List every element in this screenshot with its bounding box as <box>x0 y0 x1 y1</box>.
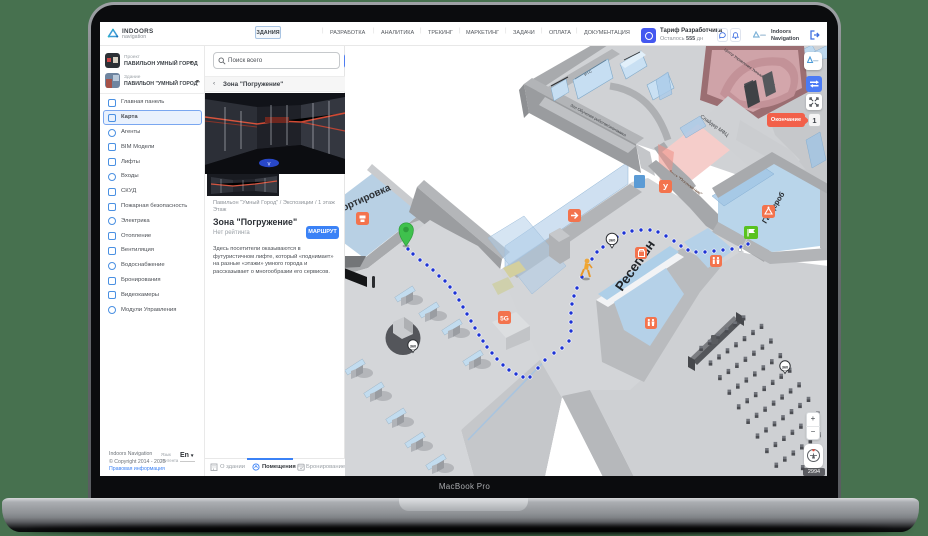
svg-text:360: 360 <box>782 365 788 369</box>
svg-text:360: 360 <box>609 237 616 242</box>
svg-text:360: 360 <box>410 344 416 348</box>
svg-text:5G: 5G <box>500 316 509 323</box>
svg-text:v: v <box>268 162 271 168</box>
